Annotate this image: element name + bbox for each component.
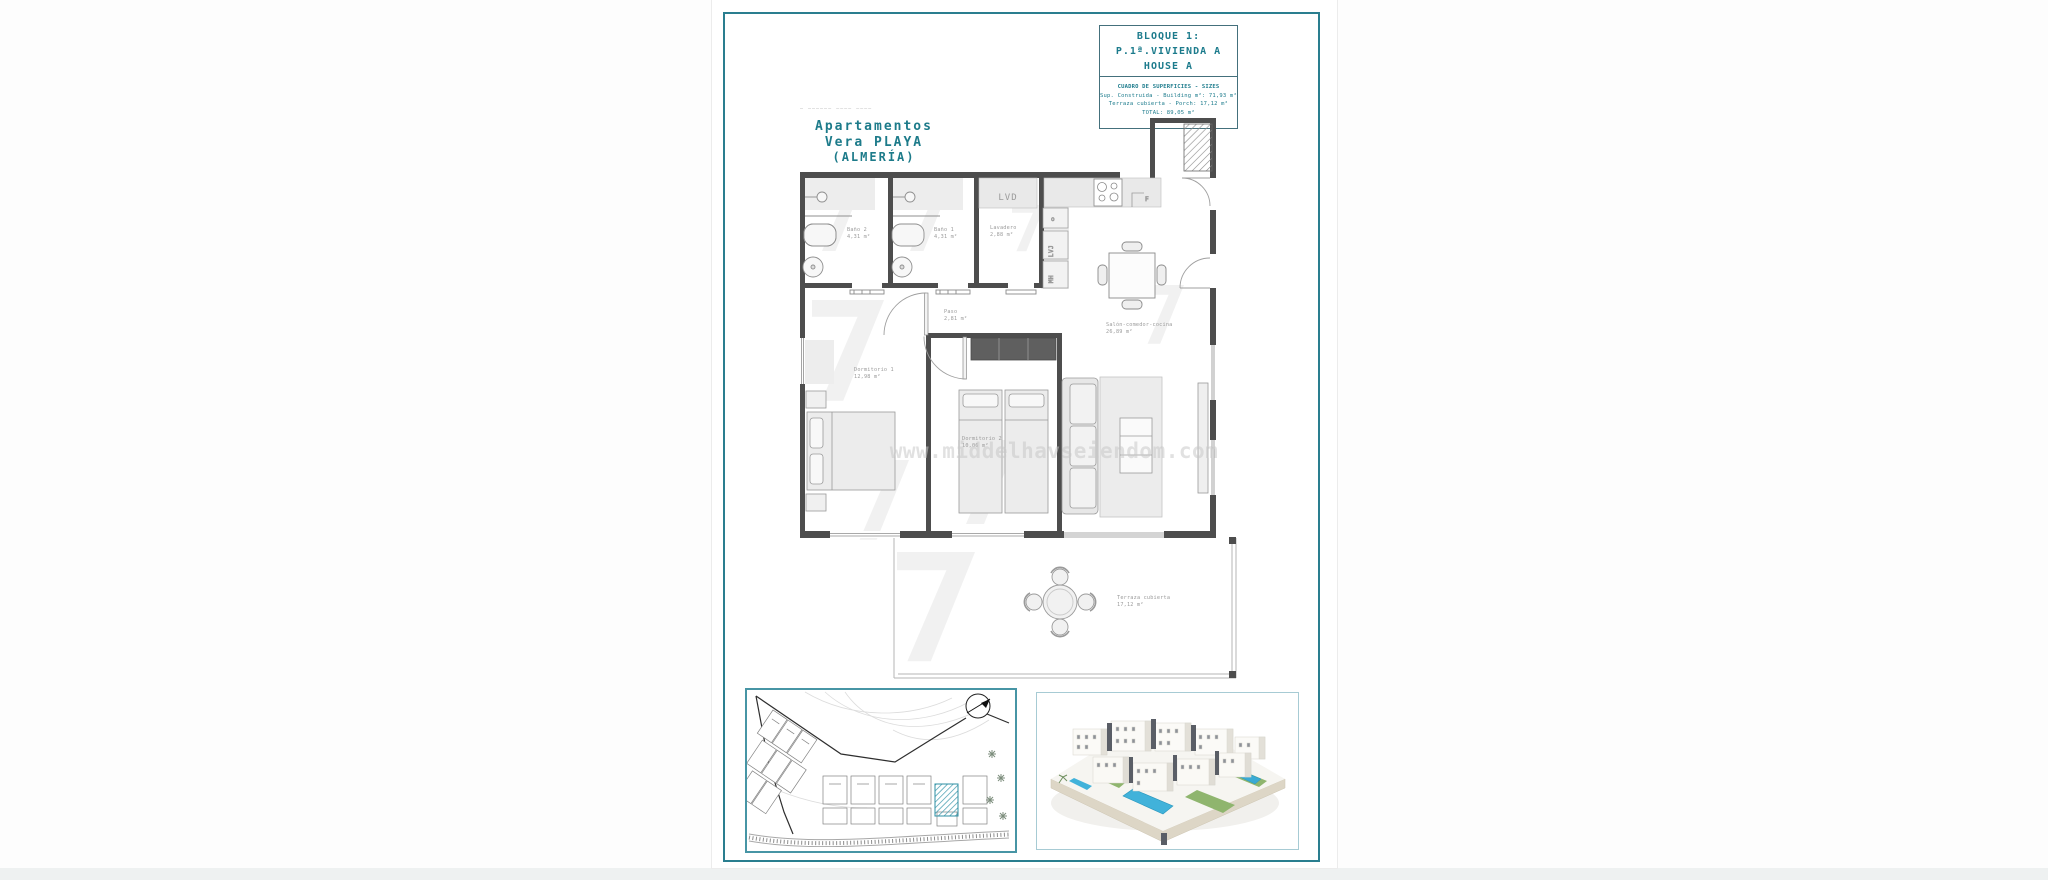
north-arrow-icon (966, 694, 990, 718)
room-area: 12,98 m² (854, 374, 881, 380)
vent-shaft (1184, 124, 1212, 171)
chair (1098, 265, 1107, 285)
chair (1051, 567, 1069, 585)
pillar (1229, 671, 1236, 678)
room-label: Paso (944, 309, 957, 315)
road (749, 831, 1009, 847)
laundry-counter: LVD (979, 178, 1037, 208)
room-area: 2,88 m² (990, 232, 1013, 238)
tv-unit (1198, 383, 1208, 493)
chair (1157, 265, 1166, 285)
chair (1024, 593, 1042, 611)
window-dorm1-left (800, 338, 805, 384)
room-area: 4,31 m² (934, 234, 957, 240)
fridge-label: F (1145, 196, 1149, 203)
dorm2-furniture (959, 338, 1056, 513)
room-label: Terraza cubierta (1117, 595, 1170, 601)
oven-label: o (1051, 216, 1055, 223)
wardrobe (971, 338, 1056, 360)
site-plan-box (745, 688, 1017, 853)
aerial-render-illustration (1037, 693, 1296, 847)
building-block (1155, 723, 1191, 751)
terrace-table-set (1024, 567, 1095, 636)
dishwasher-label: LVJ (1048, 245, 1055, 257)
shower-head-icon (817, 192, 827, 202)
dining-set (1098, 242, 1166, 309)
building-block (1093, 757, 1129, 783)
dorm1-door (884, 293, 928, 335)
drawing-sheet: — —————— ———— ———— Apartamentos Vera PLA… (712, 0, 1337, 868)
page-edge-shadow (0, 868, 2048, 880)
room-area: 2,81 m² (944, 316, 967, 322)
building-block (1195, 729, 1233, 755)
bath-sliding-doors (850, 290, 1036, 294)
window-dorm1-bottom (830, 531, 900, 538)
appliance-column: o LVJ MH (1043, 208, 1068, 288)
room-label: Baño 1 (934, 227, 954, 233)
unit-cluster-left (747, 710, 824, 819)
pillow (963, 394, 998, 407)
pillow (810, 418, 823, 448)
nightstand (806, 391, 826, 408)
building-block (1111, 721, 1151, 751)
dining-table (1109, 253, 1155, 298)
room-area: 26,89 m² (1106, 329, 1133, 335)
building-block (1133, 763, 1173, 791)
pillow (1009, 394, 1044, 407)
aerial-render-box (1036, 692, 1299, 850)
highlighted-unit (935, 784, 958, 816)
window-salon-bottom (1064, 531, 1164, 538)
website-watermark: www.middelhavseiendom.com (890, 439, 1219, 463)
room-label: Lavadero (990, 225, 1017, 231)
room-label: Salón-comedor-cocina (1106, 321, 1172, 328)
building-block (1073, 729, 1107, 755)
terrace-door-right (1180, 254, 1216, 288)
nightstand (806, 494, 826, 511)
building-block (1177, 759, 1215, 785)
round-table (1043, 585, 1077, 619)
unit-row-right (823, 776, 987, 826)
chair (1122, 300, 1142, 309)
room-area: 4,31 m² (847, 234, 870, 240)
chair (1051, 619, 1069, 637)
chair (1078, 593, 1096, 611)
cooktop (1094, 179, 1122, 206)
entry-door (1182, 178, 1216, 210)
bathtub (892, 224, 924, 246)
trees (986, 750, 1007, 820)
chair (1122, 242, 1142, 251)
window-salon-right (1210, 345, 1216, 400)
building-block (1219, 753, 1251, 777)
kitchen: F o LVJ MH (1043, 178, 1166, 309)
site-plan-drawing (747, 690, 1011, 847)
bathtub (804, 224, 836, 246)
washer-label: LVD (998, 193, 1017, 203)
room-label: Dormitorio 1 (854, 367, 894, 373)
shower-head-icon (905, 192, 915, 202)
window-dorm2-bottom (952, 531, 1024, 538)
room-label: Baño 2 (847, 227, 867, 233)
microwave-label: MH (1048, 275, 1055, 283)
pillar (1229, 537, 1236, 544)
page-canvas: — —————— ———— ———— Apartamentos Vera PLA… (0, 0, 2048, 880)
pillow (810, 454, 823, 484)
room-area: 17,12 m² (1117, 602, 1144, 608)
